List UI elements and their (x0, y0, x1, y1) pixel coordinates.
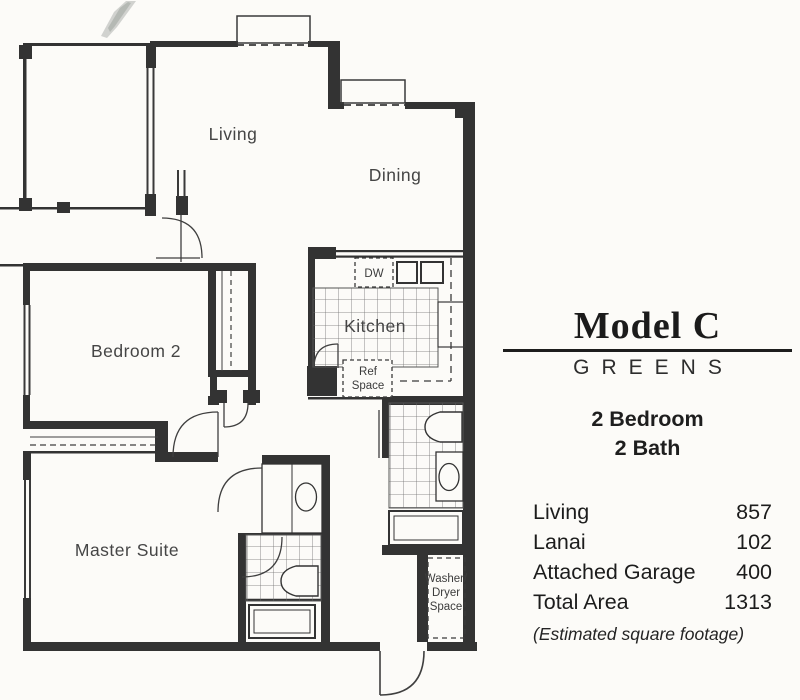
divider-rule (503, 349, 792, 352)
bathtub-icon (389, 511, 463, 545)
vanity-sink-icon (436, 452, 463, 501)
config-baths: 2 Bath (495, 434, 800, 463)
toilet-icon (425, 412, 462, 442)
master-toilet-icon (281, 566, 318, 596)
dishwasher-label: DW (364, 268, 383, 280)
config-bedrooms: 2 Bedroom (495, 405, 800, 434)
master-bathtub-icon (249, 605, 315, 638)
info-panel: Model C GREENS 2 Bedroom 2 Bath Living 8… (495, 0, 800, 700)
area-row-total: Total Area 1313 (533, 587, 772, 617)
scan-artifact (101, 1, 136, 38)
washer-dryer-label-1: Washer/ (425, 573, 468, 585)
area-row-garage: Attached Garage 400 (533, 557, 772, 587)
area-label: Attached Garage (533, 557, 696, 587)
room-label-dining: Dining (369, 165, 422, 185)
windows (24, 68, 186, 598)
kitchen-sink-icon (397, 262, 443, 283)
footnote: (Estimated square footage) (533, 624, 800, 645)
washer-dryer-label-3: Space (430, 601, 463, 613)
room-label-bedroom2: Bedroom 2 (91, 341, 181, 361)
washer-dryer-label-2: Dryer (432, 587, 460, 599)
area-label: Living (533, 497, 589, 527)
window-sills (237, 45, 405, 105)
ref-space-label-2: Space (352, 380, 385, 392)
master-vanity-sink-icon (262, 464, 322, 533)
area-value: 400 (736, 557, 772, 587)
room-label-living: Living (209, 124, 258, 144)
model-title: Model C (495, 306, 800, 346)
floor-plan-sheet: Living Dining Kitchen Bedroom 2 Master S… (0, 0, 800, 700)
area-value: 102 (736, 527, 772, 557)
community-name: GREENS (495, 356, 800, 380)
area-label: Lanai (533, 527, 586, 557)
room-label-kitchen: Kitchen (344, 316, 406, 336)
area-label: Total Area (533, 587, 629, 617)
area-row-lanai: Lanai 102 (533, 527, 772, 557)
area-value: 857 (736, 497, 772, 527)
area-table: Living 857 Lanai 102 Attached Garage 400… (533, 497, 772, 617)
area-value: 1313 (724, 587, 772, 617)
area-row-living: Living 857 (533, 497, 772, 527)
room-label-master-suite: Master Suite (75, 540, 179, 560)
floor-plan: Living Dining Kitchen Bedroom 2 Master S… (0, 0, 500, 700)
bay-windows (237, 16, 405, 103)
ref-space-label-1: Ref (359, 366, 378, 378)
